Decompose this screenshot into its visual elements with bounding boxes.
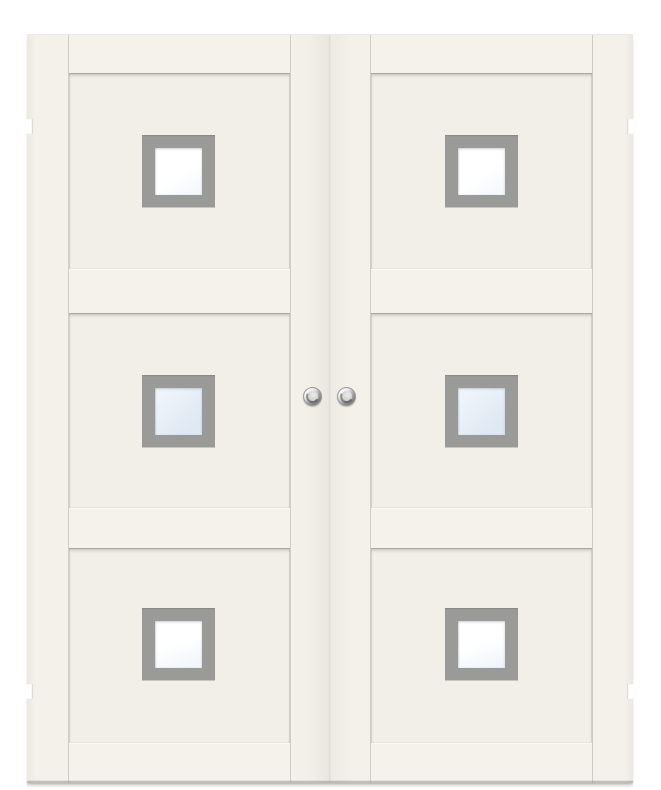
hinge-notch-bottom-right <box>627 684 634 699</box>
window-frame <box>142 375 215 448</box>
window-glass <box>155 148 202 195</box>
top-rail <box>371 35 592 73</box>
door-leaf-right <box>330 35 633 783</box>
bottom-rail <box>371 743 592 783</box>
scene-description: Product photograph of a white double int… <box>0 0 1 1</box>
window-glass <box>458 148 505 195</box>
hinge-notch-bottom-left <box>26 684 33 699</box>
window-frame <box>142 608 215 681</box>
hinge-notch-top-right <box>627 119 634 134</box>
middle-rail-upper <box>69 269 290 313</box>
right-meeting-stile <box>330 35 371 783</box>
double-door <box>27 34 633 782</box>
top-rail <box>69 35 290 73</box>
product-photo: Product photograph of a white double int… <box>0 0 661 790</box>
pull-knob-right <box>337 387 356 406</box>
window-glass <box>155 621 202 668</box>
floor-shadow <box>27 781 633 788</box>
hinge-notch-top-left <box>26 119 33 134</box>
window-frame <box>445 375 518 448</box>
window-glass <box>155 388 202 435</box>
right-outer-stile <box>592 35 633 783</box>
middle-rail-upper <box>371 269 592 313</box>
middle-rail-lower <box>69 508 290 548</box>
window-frame <box>142 135 215 208</box>
center-joint <box>329 35 331 783</box>
window-frame <box>445 135 518 208</box>
middle-rail-lower <box>371 508 592 548</box>
window-glass <box>458 621 505 668</box>
bottom-rail <box>69 743 290 783</box>
window-frame <box>445 608 518 681</box>
door-leaf-left <box>27 35 330 783</box>
left-outer-stile <box>27 35 69 783</box>
pull-knob-left <box>303 387 322 406</box>
window-glass <box>458 388 505 435</box>
left-meeting-stile <box>290 35 330 783</box>
